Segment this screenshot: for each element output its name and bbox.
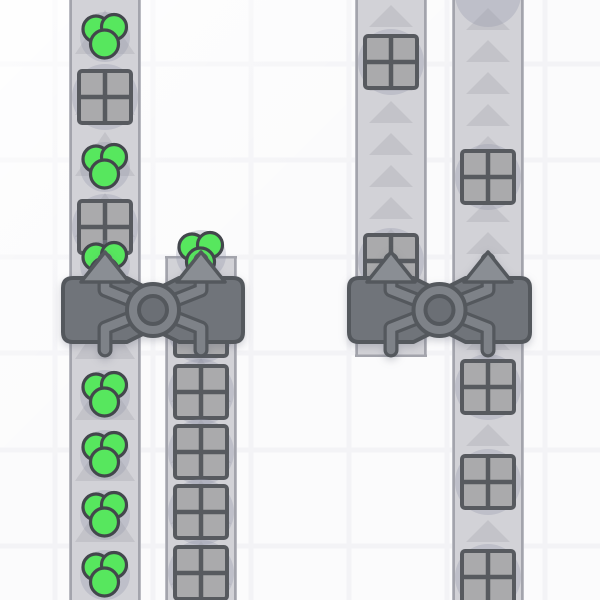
item-window-crate xyxy=(358,29,424,95)
item-window-crate xyxy=(168,359,234,425)
item-green-cluster xyxy=(80,490,130,540)
building-ring-core xyxy=(139,296,167,324)
factory-scene[interactable] xyxy=(0,0,600,600)
item-window-crate xyxy=(455,544,521,600)
green-ball xyxy=(91,30,119,58)
building-ring-core xyxy=(426,296,454,324)
green-ball xyxy=(91,160,119,188)
item-green-cluster xyxy=(80,430,130,480)
item-window-crate xyxy=(455,449,521,515)
item-window-crate xyxy=(168,419,234,485)
item-window-crate xyxy=(72,64,138,130)
game-viewport[interactable] xyxy=(0,0,600,600)
item-green-cluster xyxy=(80,550,130,600)
item-green-cluster xyxy=(80,370,130,420)
green-ball xyxy=(91,388,119,416)
item-green-cluster xyxy=(80,12,130,62)
green-ball xyxy=(91,448,119,476)
item-green-cluster xyxy=(80,142,130,192)
item-window-crate xyxy=(168,540,234,600)
item-window-crate xyxy=(455,354,521,420)
green-ball xyxy=(91,568,119,596)
item-window-crate xyxy=(455,144,521,210)
item-window-crate xyxy=(168,479,234,545)
green-ball xyxy=(91,508,119,536)
